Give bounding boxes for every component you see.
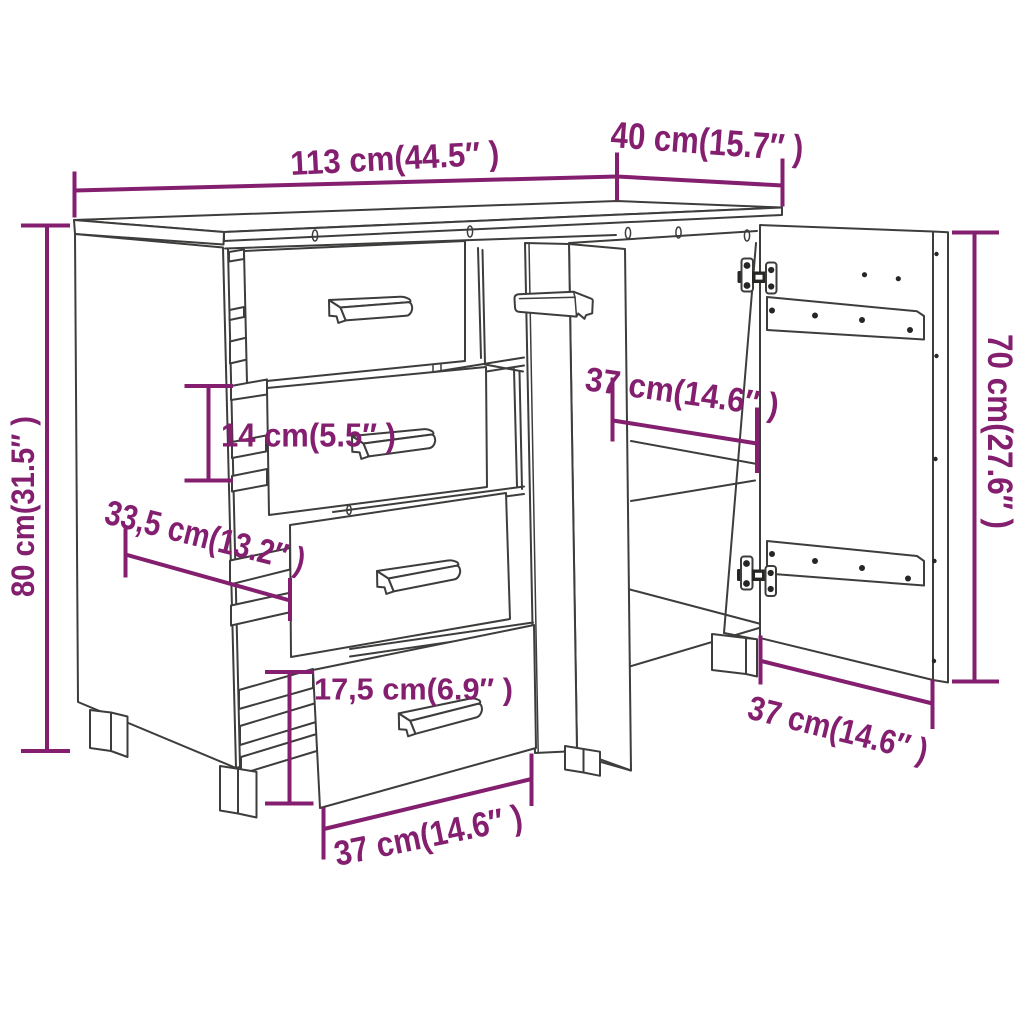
svg-text:70 cm(27.6″ ): 70 cm(27.6″ ) <box>980 334 1019 529</box>
svg-text:37 cm(14.6″ ): 37 cm(14.6″ ) <box>331 798 526 874</box>
svg-text:17,5 cm(6.9″ ): 17,5 cm(6.9″ ) <box>314 672 513 707</box>
svg-text:14 cm(5.5″ ): 14 cm(5.5″ ) <box>221 417 396 454</box>
svg-text:113 cm(44.5″ ): 113 cm(44.5″ ) <box>289 134 500 183</box>
svg-text:40 cm(15.7″ ): 40 cm(15.7″ ) <box>609 114 804 169</box>
svg-text:80 cm(31.5″ ): 80 cm(31.5″ ) <box>5 416 41 597</box>
svg-text:37 cm(14.6″ ): 37 cm(14.6″ ) <box>744 689 932 770</box>
